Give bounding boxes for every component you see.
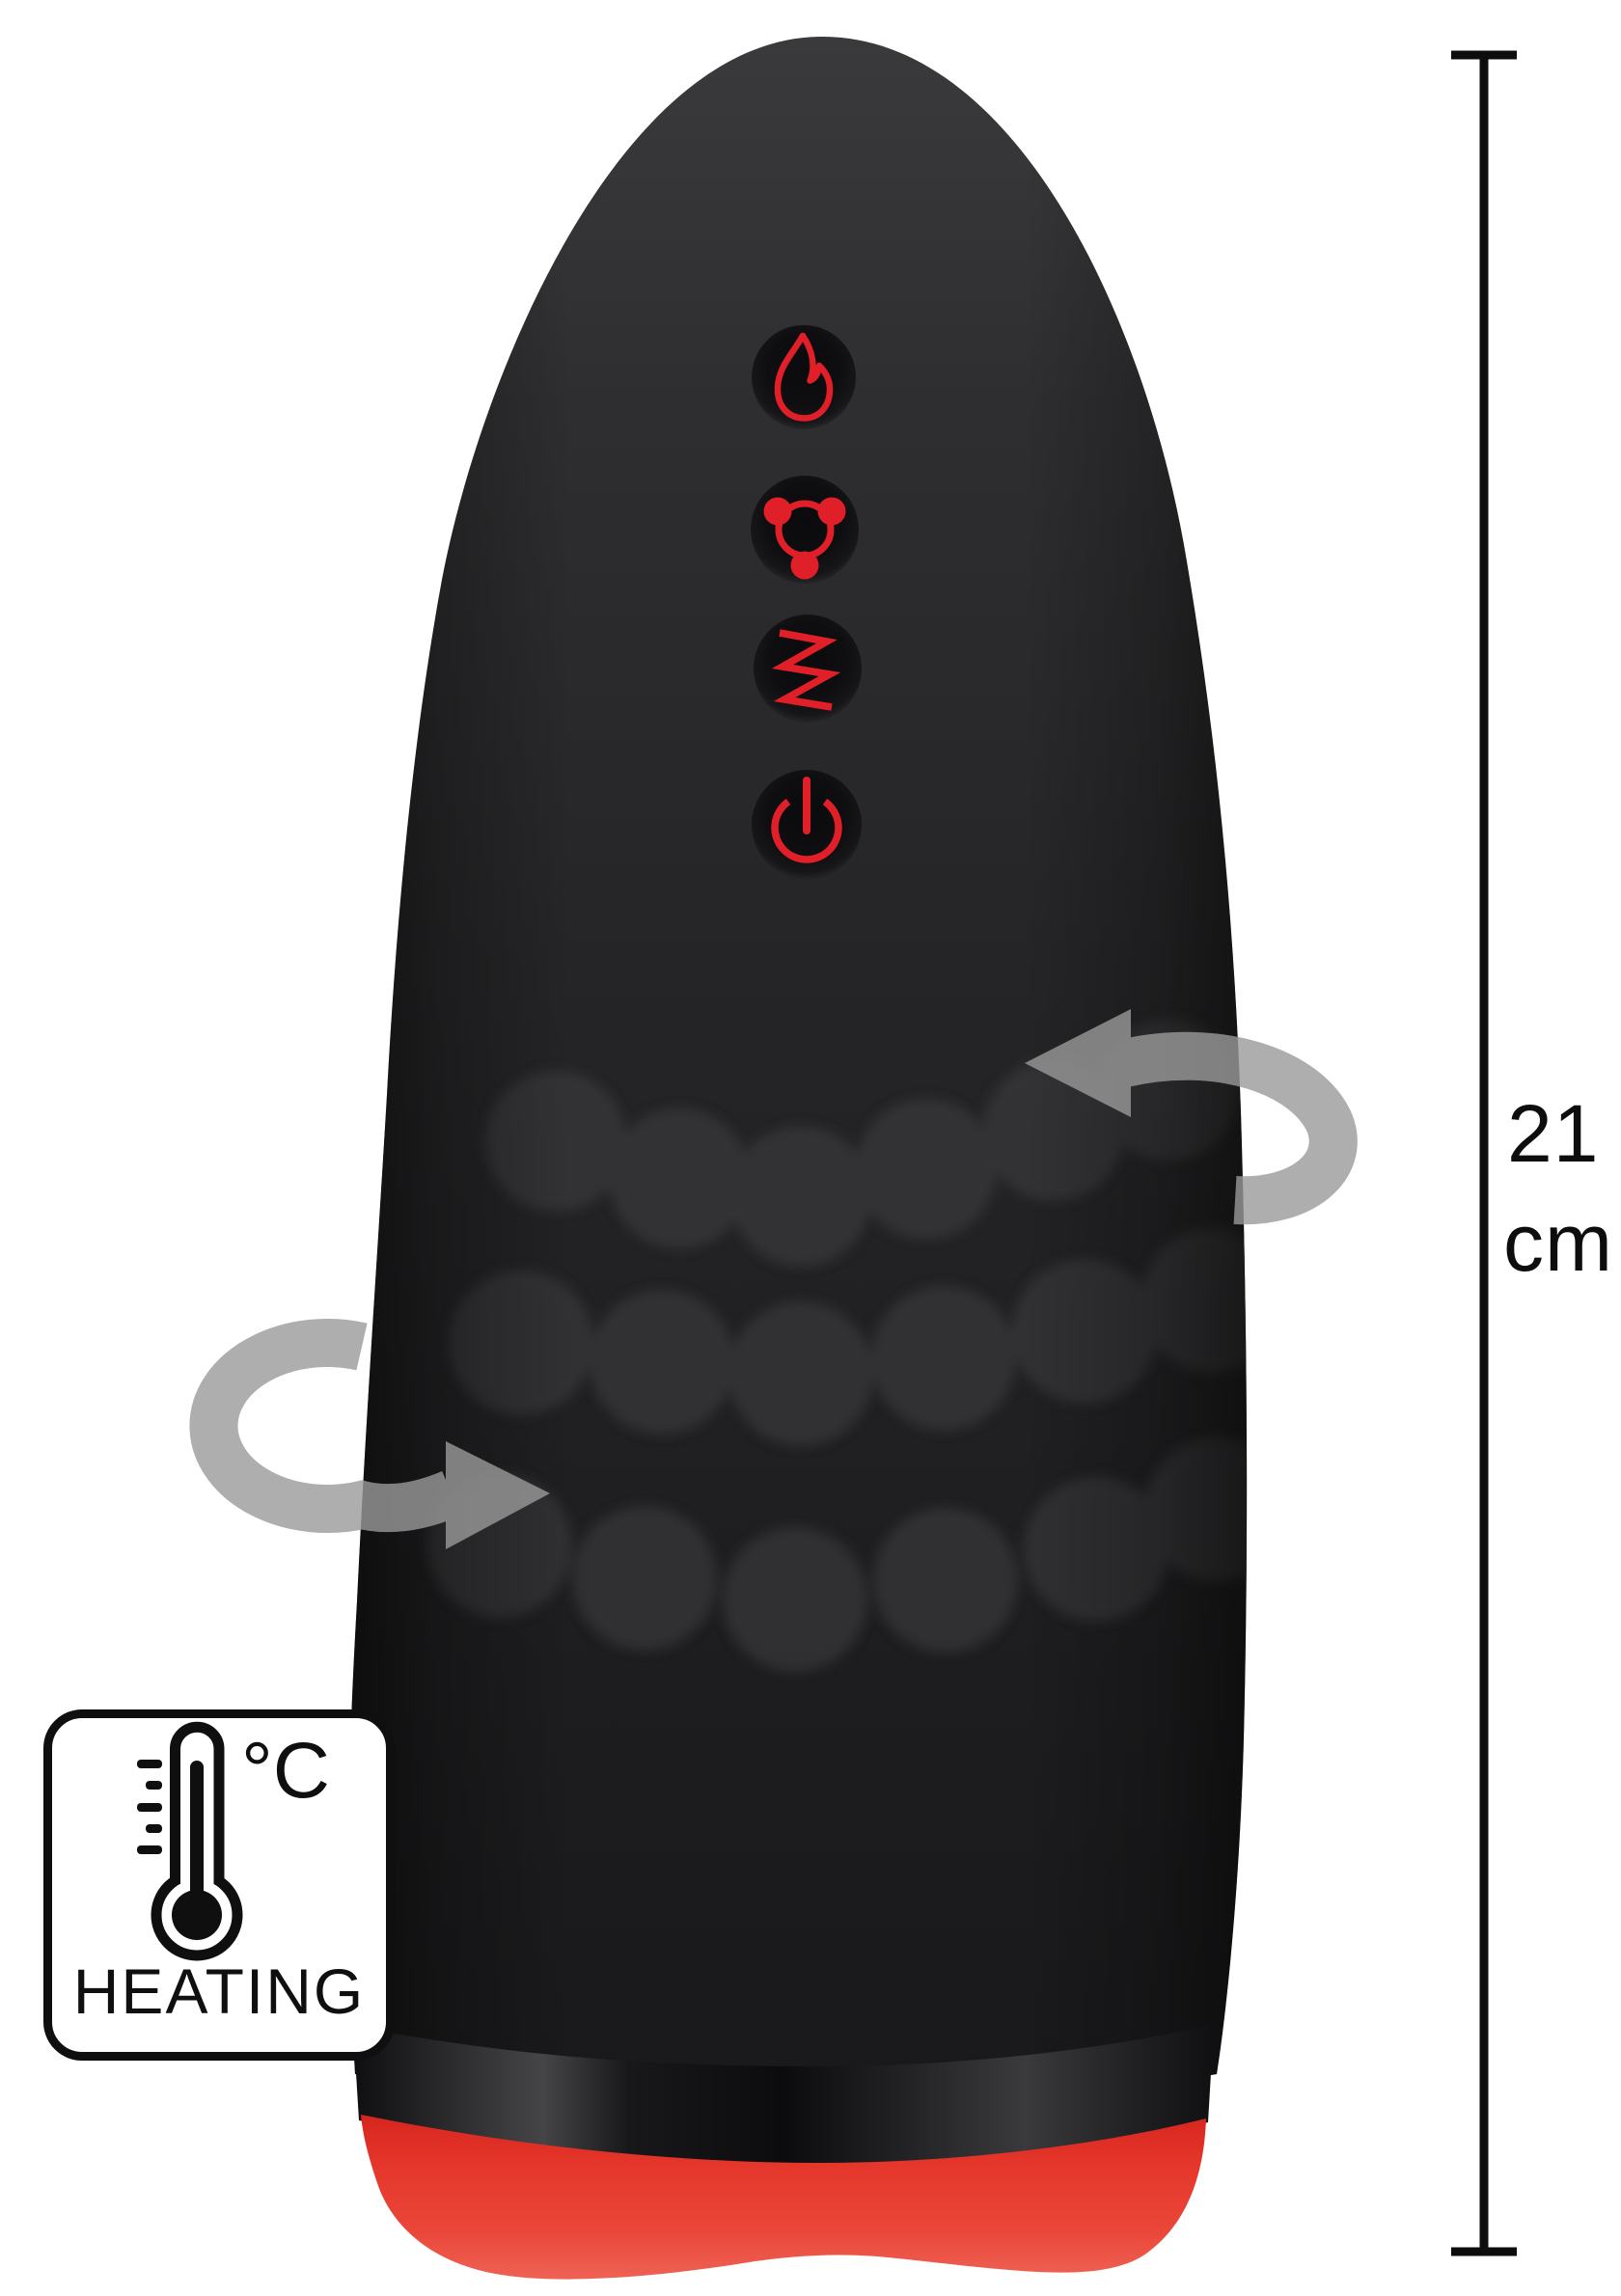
temperature-unit-label: °C — [241, 1732, 330, 1811]
measurement-unit: cm — [1503, 1202, 1613, 1283]
thermometer-scale-ticks — [137, 1760, 162, 1854]
heating-badge: °C HEATING — [43, 1709, 395, 2061]
vibration-button — [754, 615, 862, 723]
heating-label: HEATING — [52, 1959, 386, 2023]
rotation-button — [751, 476, 859, 584]
power-button — [752, 770, 862, 880]
heat-button — [752, 325, 856, 429]
product-image: 21 cm °C HEATING — [0, 0, 1621, 2296]
measurement-value: 21 — [1507, 1093, 1599, 1174]
